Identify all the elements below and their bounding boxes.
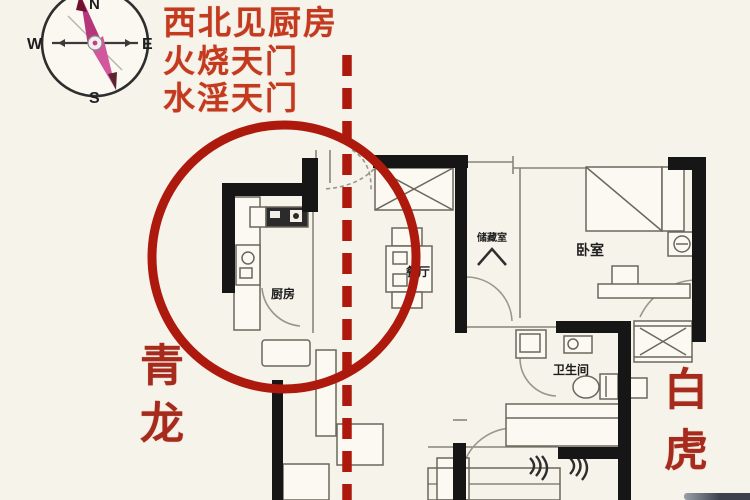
desk-icon <box>598 266 690 298</box>
wall <box>453 443 466 500</box>
fengshui-floorplan-image: 厨房 餐厅 储藏室 卧室 卫生间 N W E <box>0 0 750 500</box>
room-label-bathroom: 卫生间 <box>553 362 589 377</box>
wall <box>373 155 468 168</box>
compass-west-label: W <box>27 36 43 53</box>
sink-icon <box>516 330 546 358</box>
nightstand-icon <box>668 232 696 256</box>
wall <box>692 157 706 342</box>
cabinet-icon <box>283 464 329 500</box>
wall <box>556 321 620 333</box>
compass: N W E S <box>27 0 153 107</box>
bed-icon <box>586 167 684 231</box>
compass-north-label: N <box>89 0 100 13</box>
fridge-icon <box>262 340 310 366</box>
wall <box>455 155 467 333</box>
room-label-storage: 储藏室 <box>476 231 507 244</box>
side-label-azure-dragon: 青龙 <box>125 342 189 458</box>
caption-line-3: 水淫天门 <box>163 73 299 119</box>
floorplan-canvas: 厨房 餐厅 储藏室 卧室 卫生间 N W E <box>0 0 750 500</box>
watermark-bar <box>684 493 750 500</box>
side-label-white-tiger: 白虎 <box>649 366 713 488</box>
room-label-kitchen: 厨房 <box>271 286 295 301</box>
shaft-icon <box>634 321 692 362</box>
toilet-icon <box>573 374 618 399</box>
wall <box>302 158 318 212</box>
stove-icon <box>250 207 308 227</box>
wall <box>222 183 235 293</box>
washer-icon <box>564 336 592 353</box>
compass-east-label: E <box>142 36 153 53</box>
cabinet-icon <box>316 350 336 436</box>
storage-door-chevron-icon <box>478 249 506 265</box>
wall <box>272 380 283 500</box>
wall <box>558 447 620 459</box>
wall <box>618 321 631 500</box>
room-label-bedroom: 卧室 <box>576 242 604 258</box>
compass-south-label: S <box>89 90 100 107</box>
